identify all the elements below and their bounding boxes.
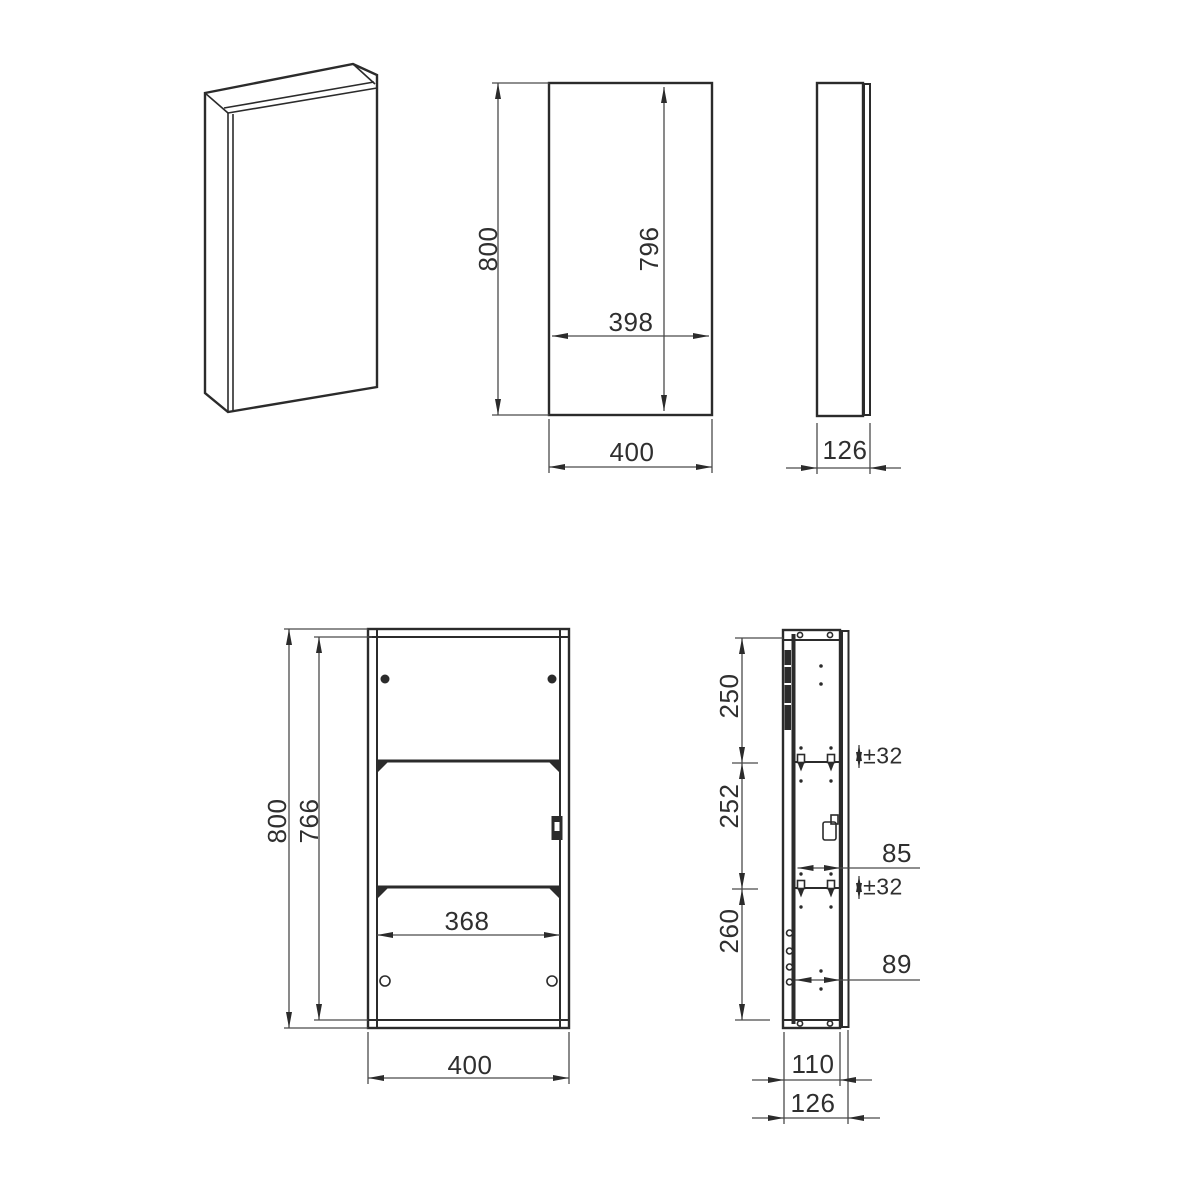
technical-drawing-page: 800 796 398 400 126 800 766 368 400 250 … [0,0,1200,1200]
hinge-plate [785,650,792,730]
shelf-pin [798,881,805,889]
dim-label-front-door-width: 398 [609,309,654,335]
dim-label-internal-inner-height: 766 [296,799,322,844]
cabinet-3d-silhouette [205,64,377,412]
dim-label-front-width: 400 [610,439,655,465]
back-panel-hole [787,930,793,936]
dim-label-top-section: 250 [716,674,742,719]
front-view-outline [549,83,712,415]
shelf-pin [828,755,835,763]
shelf-pin [798,755,805,763]
pin-hole-dot [819,682,823,686]
dim-label-bottom-section: 260 [716,909,742,954]
pin-hole-dot [819,664,823,668]
dim-label-internal-width: 400 [448,1052,493,1078]
dim-label-carcass-depth: 110 [792,1051,835,1077]
dim-label-internal-height: 800 [264,799,290,844]
fixing-hole-right [547,976,557,986]
dim-label-front-height: 800 [475,227,501,272]
pin-hole-dot [799,746,802,749]
dim-label-front-door-height: 796 [636,227,662,272]
hinge-slit [785,683,792,685]
side-view-carcass [817,83,863,416]
side-view [786,83,901,474]
carcass-outline [368,629,569,1028]
back-panel-hole [787,979,793,985]
door-edge-strip [842,631,849,1027]
hinge-slit [785,703,792,705]
door-catch-window [555,822,560,831]
hanging-hole-right [548,675,557,684]
pin-hole-dot [799,872,802,875]
dim-label-side-depth: 126 [823,437,868,463]
hanging-hole-left [381,675,390,684]
dim-label-bottom-hole-offset: 89 [882,951,912,977]
pin-hole-dot [819,969,822,972]
dim-label-middle-section: 252 [716,784,742,829]
side-view-door-strip [864,84,870,415]
pin-hole-dot [799,905,802,908]
dim-label-total-depth: 126 [791,1090,836,1116]
pin-hole-dot [799,779,802,782]
front-view [492,83,712,473]
back-panel-hole [787,964,793,970]
pin-hole-dot [829,872,832,875]
dim-label-hinge-plate-offset: 85 [882,840,912,866]
internal-front-view [284,629,569,1084]
pin-hole-dot [829,905,832,908]
pin-hole-dot [829,746,832,749]
screw-hole [797,1021,802,1026]
pin-hole-dot [819,987,822,990]
screw-hole [797,632,802,637]
dim-label-shelf-adjust-bottom: ±32 [863,876,903,899]
isometric-view [205,64,377,412]
back-panel-hole [787,948,793,954]
drawing-canvas [0,0,1200,1200]
hinge-slit [785,665,792,667]
fixing-hole-left [380,976,390,986]
dim-label-internal-inner-width: 368 [445,908,490,934]
screw-hole [827,632,832,637]
dim-label-shelf-adjust-top: ±32 [863,745,903,768]
screw-hole [827,1021,832,1026]
shelf-pin [828,881,835,889]
pin-hole-dot [829,779,832,782]
